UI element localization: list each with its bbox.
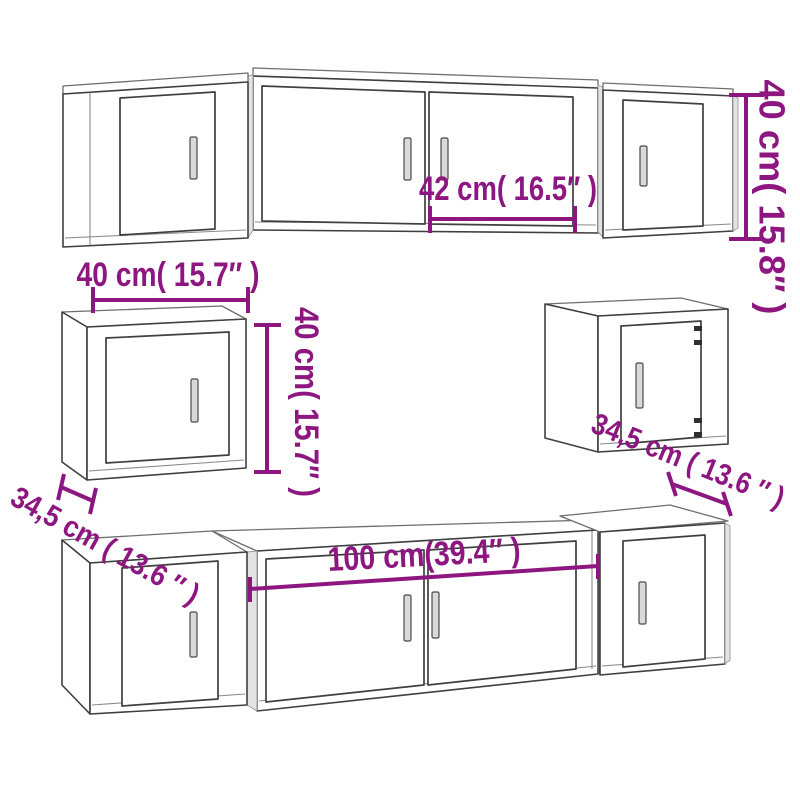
side-panel (62, 312, 87, 480)
door-handle (190, 612, 197, 657)
door (623, 535, 705, 667)
hinge-mark (694, 340, 702, 345)
hinge-mark (694, 432, 702, 437)
top-row-left-cabinet (63, 73, 248, 247)
dim-label-wall-cab-width: 40 cm( 15.7″ ) (77, 256, 260, 294)
product-image: 42 cm( 16.5″ ) 40 cm( 15.8″ ) 40 cm( 15.… (0, 0, 800, 800)
top-row-right-cabinet (603, 83, 738, 238)
dim-label-wall-cab-height: 40 cm( 15.7″ ) (287, 307, 325, 497)
door-handle (640, 146, 647, 186)
side-panel (62, 540, 90, 714)
door-handle (639, 582, 646, 624)
dim-label-top-row-height: 40 cm( 15.8″ ) (752, 80, 793, 315)
door (623, 100, 703, 230)
top-row-center-cabinet (253, 68, 598, 233)
door-handle (636, 363, 643, 408)
wall-cabinet-left (62, 306, 246, 480)
door (120, 92, 215, 235)
left-door (262, 86, 425, 224)
hinge-mark (694, 326, 702, 331)
dim-line-wall-cab-height (254, 325, 281, 472)
hinge-mark (694, 418, 702, 423)
dim-label-top-door-width: 42 cm( 16.5″ ) (419, 170, 597, 208)
door-handle (404, 595, 411, 641)
door-handle (190, 137, 197, 179)
door-handle (404, 138, 411, 180)
door-handle (191, 379, 198, 422)
side-panel (733, 96, 738, 231)
door-handle (432, 592, 439, 638)
side-panel (725, 523, 730, 664)
tv-cabinet-set-dimension-diagram: 42 cm( 16.5″ ) 40 cm( 15.8″ ) 40 cm( 15.… (0, 0, 800, 800)
door (106, 332, 229, 463)
cabinet-gap (247, 551, 257, 711)
